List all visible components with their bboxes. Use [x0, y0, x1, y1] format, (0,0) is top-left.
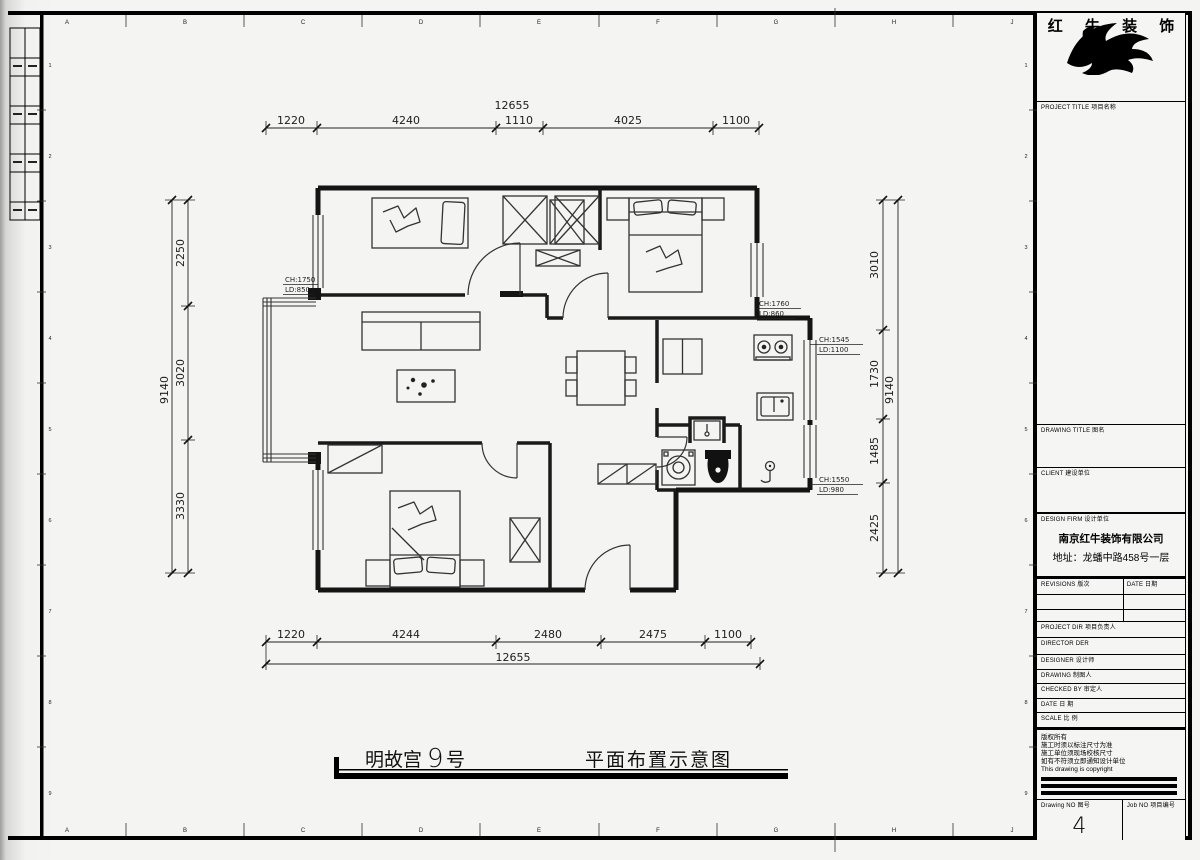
grid-letters-top: A B C D E F G H J K: [65, 20, 1132, 26]
note-line: This drawing is copyright: [1041, 766, 1181, 774]
pillow: [667, 200, 696, 215]
grid-number: 4: [1024, 336, 1027, 342]
shoe-cabinet: [598, 464, 656, 484]
clothes-sketch: [398, 502, 436, 530]
nightstand: [607, 198, 629, 220]
dim-overall-bottom: 12655: [496, 651, 531, 664]
drawing-title-label: DRAWING TITLE 图名: [1037, 425, 1185, 435]
toilet: [705, 450, 731, 483]
sheet-svg: A B C D E F G H J K A B C D E F G H J K: [0, 0, 1200, 860]
dim-segment: 1100: [714, 628, 742, 641]
grid-number: 3: [48, 245, 51, 251]
dim-overall-left: 9140: [158, 376, 171, 404]
drawing-title-section: DRAWING TITLE 图名: [1037, 425, 1185, 468]
footer-address-prefix: 明故宫: [365, 749, 422, 771]
grid-letters-bottom: A B C D E F G H J K: [65, 828, 1132, 834]
gas-stove: [754, 335, 792, 360]
grid-number: 1: [48, 63, 51, 69]
grid-letter: G: [774, 828, 779, 834]
annotation-ch: CH:1750: [285, 276, 315, 284]
grid-numbers-left: 1 2 3 4 5 6 7 8 9: [37, 63, 52, 797]
grid-letter: C: [301, 20, 306, 26]
grid-letter: E: [537, 20, 541, 26]
footer-title: 明故宫 9 号 平面布置示意图: [334, 744, 788, 779]
grid-letter: A: [65, 20, 69, 26]
rednow-logo: [1037, 13, 1185, 75]
dining-table: [566, 351, 636, 405]
window-kitchen: [804, 340, 816, 420]
project-dir-row: PROJECT DIR 项目负责人: [1037, 622, 1185, 638]
grid-letter: F: [656, 828, 660, 834]
grid-number: 7: [1024, 609, 1027, 615]
dim-segment: 1485: [868, 437, 881, 465]
grid-letter: F: [656, 20, 660, 26]
balcony-glazing: [263, 298, 316, 462]
client-label: CLIENT 建设单位: [1037, 468, 1185, 478]
date-row-label: DATE 日 期: [1037, 699, 1185, 709]
basin: [694, 421, 720, 440]
note-line: 如有不符须立即通知设计单位: [1041, 758, 1181, 766]
bed-topleft: [372, 198, 468, 248]
grid-letter: E: [537, 828, 541, 834]
project-dir-label: PROJECT DIR 项目负责人: [1037, 622, 1185, 632]
drawing-sheet: A B C D E F G H J K A B C D E F G H J K: [0, 0, 1200, 860]
bed-bottom: [366, 491, 484, 587]
annotation-ch: CH:1760: [759, 300, 789, 308]
note-line: 施工时须以标注尺寸为准: [1041, 742, 1181, 750]
fridge: [663, 339, 702, 374]
dimensions: 12655 1220 4240 1110 4025 1100 1220: [158, 99, 905, 670]
design-firm-address: 地址：龙蟠中路458号一层: [1037, 549, 1185, 564]
dim-segment: 4025: [614, 114, 642, 127]
drawing-no-section: Drawing NO 图号 4 Job NO 项目编号: [1037, 800, 1185, 840]
grid-number: 6: [1024, 518, 1027, 524]
grid-number: 6: [48, 518, 51, 524]
redacted-text-bar: [1041, 784, 1177, 788]
grid-number: 5: [1024, 427, 1027, 433]
client-section: CLIENT 建设单位: [1037, 468, 1185, 513]
dim-segment: 1100: [722, 114, 750, 127]
grid-number: 1: [1024, 63, 1027, 69]
note-line: 版权所有: [1041, 734, 1181, 742]
grid-letter: D: [419, 20, 424, 26]
title-block-logo-section: 红 牛 装 饰: [1037, 13, 1185, 102]
window-bath: [804, 425, 816, 478]
director-label: DIRECTOR DER: [1037, 638, 1185, 648]
dim-segment: 1730: [868, 360, 881, 388]
grid-number: 4: [48, 336, 51, 342]
footer-underline: [334, 773, 788, 779]
notes-section: 版权所有 施工时须以标注尺寸为准 施工单位须现场校核尺寸 如有不符须立即通知设计…: [1037, 728, 1185, 800]
grid-letter: C: [301, 828, 306, 834]
coffee-table: [397, 370, 455, 402]
scale-row-label: SCALE 比 例: [1037, 713, 1185, 723]
closet-right: [555, 196, 599, 244]
door-bedroom-bottom: [482, 443, 517, 478]
closet-small: [536, 250, 580, 266]
dim-segment: 3020: [174, 359, 187, 387]
annotation-ld: LD:860: [759, 310, 784, 318]
project-title-section: PROJECT TITLE 项目名称: [1037, 102, 1185, 425]
director-row: DIRECTOR DER: [1037, 638, 1185, 655]
drawing-label: DRAWING 制图人: [1037, 670, 1185, 680]
dim-segment: 1110: [505, 114, 533, 127]
binding-table: [10, 28, 40, 220]
dim-segment: 2480: [534, 628, 562, 641]
date-column-label: DATE 日期: [1123, 579, 1158, 589]
footer-address-number: 9: [427, 744, 444, 774]
grid-number: 9: [48, 791, 51, 797]
grid-letter: J: [1011, 20, 1014, 26]
grid-letter: G: [774, 20, 779, 26]
dim-segment: 2250: [174, 239, 187, 267]
design-firm-label: DESIGN FIRM 设计单位: [1037, 514, 1185, 524]
footer-address-suffix: 号: [446, 750, 465, 771]
grid-letter: H: [892, 828, 896, 834]
grid-number: 5: [48, 427, 51, 433]
dim-overall-right: 9140: [883, 376, 896, 404]
desk-cabinet: [328, 445, 382, 473]
dim-segment: 2425: [868, 514, 881, 542]
grid-letter: H: [892, 20, 896, 26]
door-entry: [585, 545, 630, 590]
dim-segment: 4244: [392, 628, 420, 641]
footer-plan-title: 平面布置示意图: [585, 749, 732, 771]
grid-number: 8: [1024, 700, 1027, 706]
pillow: [633, 200, 662, 216]
grid-number: 3: [1024, 245, 1027, 251]
revisions-label: REVISIONS 版次: [1037, 579, 1090, 589]
annotation-ld: LD:850: [285, 286, 310, 294]
annotation-ld: LD:1100: [819, 346, 848, 354]
grid-letter: J: [1011, 828, 1014, 834]
floor-drain: [761, 462, 775, 483]
dim-segment: 2475: [639, 628, 667, 641]
clothes-sketch: [646, 246, 682, 272]
grid-letter: D: [419, 828, 424, 834]
washing-machine: [662, 450, 695, 485]
drawing-no-value: 4: [1037, 814, 1122, 839]
dimension-right: 3010 1730 1485 2425 9140: [868, 196, 905, 577]
dim-segment: 3330: [174, 492, 187, 520]
annotation-ch: CH:1545: [819, 336, 849, 344]
date-row: DATE 日 期: [1037, 699, 1185, 713]
scale-row: SCALE 比 例: [1037, 713, 1185, 728]
dim-segment: 1220: [277, 628, 305, 641]
nightstand: [702, 198, 724, 220]
sofa: [362, 312, 480, 350]
door-room-topleft: [468, 243, 520, 295]
grid-letter: A: [65, 828, 69, 834]
window-bedroom-right: [751, 243, 763, 297]
dimension-left: 2250 3020 3330 9140: [158, 196, 195, 577]
annotation-ld: LD:980: [819, 486, 844, 494]
closet-left: [503, 196, 547, 244]
wardrobe-bottom: [510, 518, 540, 562]
kitchen-sink: [757, 393, 793, 420]
design-firm-section: DESIGN FIRM 设计单位 南京红牛装饰有限公司 地址：龙蟠中路458号一…: [1037, 513, 1185, 577]
designer-row: DESIGNER 设计师: [1037, 655, 1185, 670]
project-title-label: PROJECT TITLE 项目名称: [1037, 102, 1185, 112]
dim-overall-top: 12655: [495, 99, 530, 112]
redacted-text-bar: [1041, 777, 1177, 781]
nightstand: [366, 560, 390, 586]
dim-segment: 3010: [868, 251, 881, 279]
drawing-no-label: Drawing NO 图号: [1037, 800, 1122, 810]
dim-segment: 1220: [277, 114, 305, 127]
title-block: 红 牛 装 饰 PROJECT TITLE 项目名称 DRAWING TITLE…: [1037, 13, 1186, 840]
dimension-bottom: 1220 4244 2480 2475 1100 12655: [262, 628, 764, 670]
grid-number: 2: [48, 154, 51, 160]
annotation-window-bath: CH:1550 LD:980: [810, 476, 863, 495]
sheet-frame: A B C D E F G H J K A B C D E F G H J K: [8, 8, 1192, 852]
grid-number: 2: [1024, 154, 1027, 160]
door-room-topright: [563, 273, 608, 318]
grid-number: 8: [48, 700, 51, 706]
design-firm-name: 南京红牛装饰有限公司: [1037, 531, 1185, 546]
revisions-section: REVISIONS 版次 DATE 日期: [1037, 577, 1185, 622]
dim-segment: 4240: [392, 114, 420, 127]
job-no-label: Job NO 项目编号: [1123, 800, 1185, 810]
annotation-window-kitchen: CH:1545 LD:1100: [810, 336, 863, 355]
grid-letter: B: [183, 20, 187, 26]
note-line: 施工单位须现场校核尺寸: [1041, 750, 1181, 758]
checked-by-label: CHECKED BY 审定人: [1037, 684, 1185, 694]
redacted-text-bar: [1041, 791, 1177, 795]
grid-number: 9: [1024, 791, 1027, 797]
bed-topright: [607, 198, 724, 292]
window-annotations: CH:1750 LD:850 CH:1760 LD:860 CH:1545 LD…: [283, 276, 863, 495]
checked-by-row: CHECKED BY 审定人: [1037, 684, 1185, 699]
nightstand: [460, 560, 484, 586]
grid-letter: B: [183, 828, 187, 834]
window-left-lower: [313, 470, 323, 550]
grid-number: 7: [48, 609, 51, 615]
pillow: [393, 557, 422, 574]
wall-blocks: [308, 288, 523, 464]
floor-plan: [263, 188, 816, 590]
pillow: [426, 557, 455, 574]
designer-label: DESIGNER 设计师: [1037, 655, 1185, 665]
footer-corner-mark: [334, 757, 339, 774]
furniture: [328, 196, 793, 587]
drawing-row: DRAWING 制图人: [1037, 670, 1185, 684]
annotation-ch: CH:1550: [819, 476, 849, 484]
dimension-top: 12655 1220 4240 1110 4025 1100: [262, 99, 763, 135]
clothes-sketch: [383, 206, 420, 232]
